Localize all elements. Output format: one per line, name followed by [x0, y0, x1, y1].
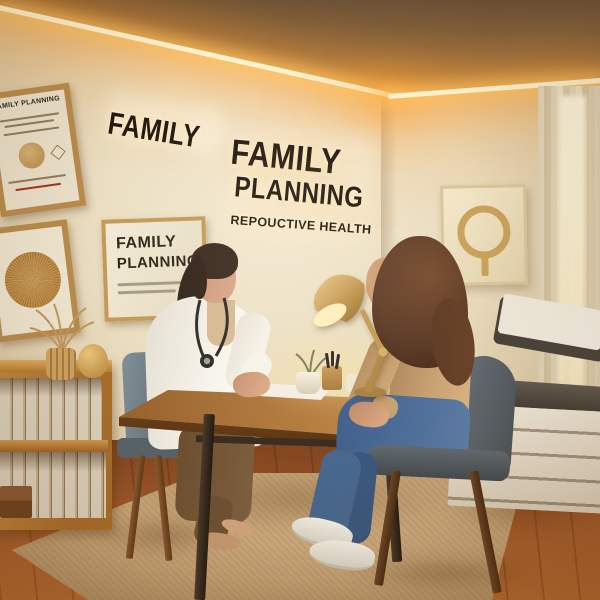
- gold-vase: [78, 344, 108, 378]
- bookshelf-middle-board: [0, 440, 108, 452]
- certificate-title: AMILY PLANNING: [0, 95, 64, 112]
- poster-title-line1: FAMILY: [116, 233, 177, 253]
- book-stack: [0, 486, 32, 518]
- clinic-room-photo: FAMILY FAMILY PLANNING REPOUCTIVE HEALTH…: [0, 0, 600, 600]
- stethoscope: [186, 296, 242, 374]
- certificate-seal-icon: [50, 145, 65, 160]
- brass-desk-lamp: [300, 270, 410, 400]
- certificate-text-bar: [15, 183, 61, 191]
- certificate-pie-diagram: [17, 141, 46, 170]
- poster-caption-bar: [118, 289, 176, 294]
- certificate-text-bar: [3, 126, 59, 136]
- binder-row-top: [0, 378, 102, 440]
- ribbed-vase: [46, 348, 76, 380]
